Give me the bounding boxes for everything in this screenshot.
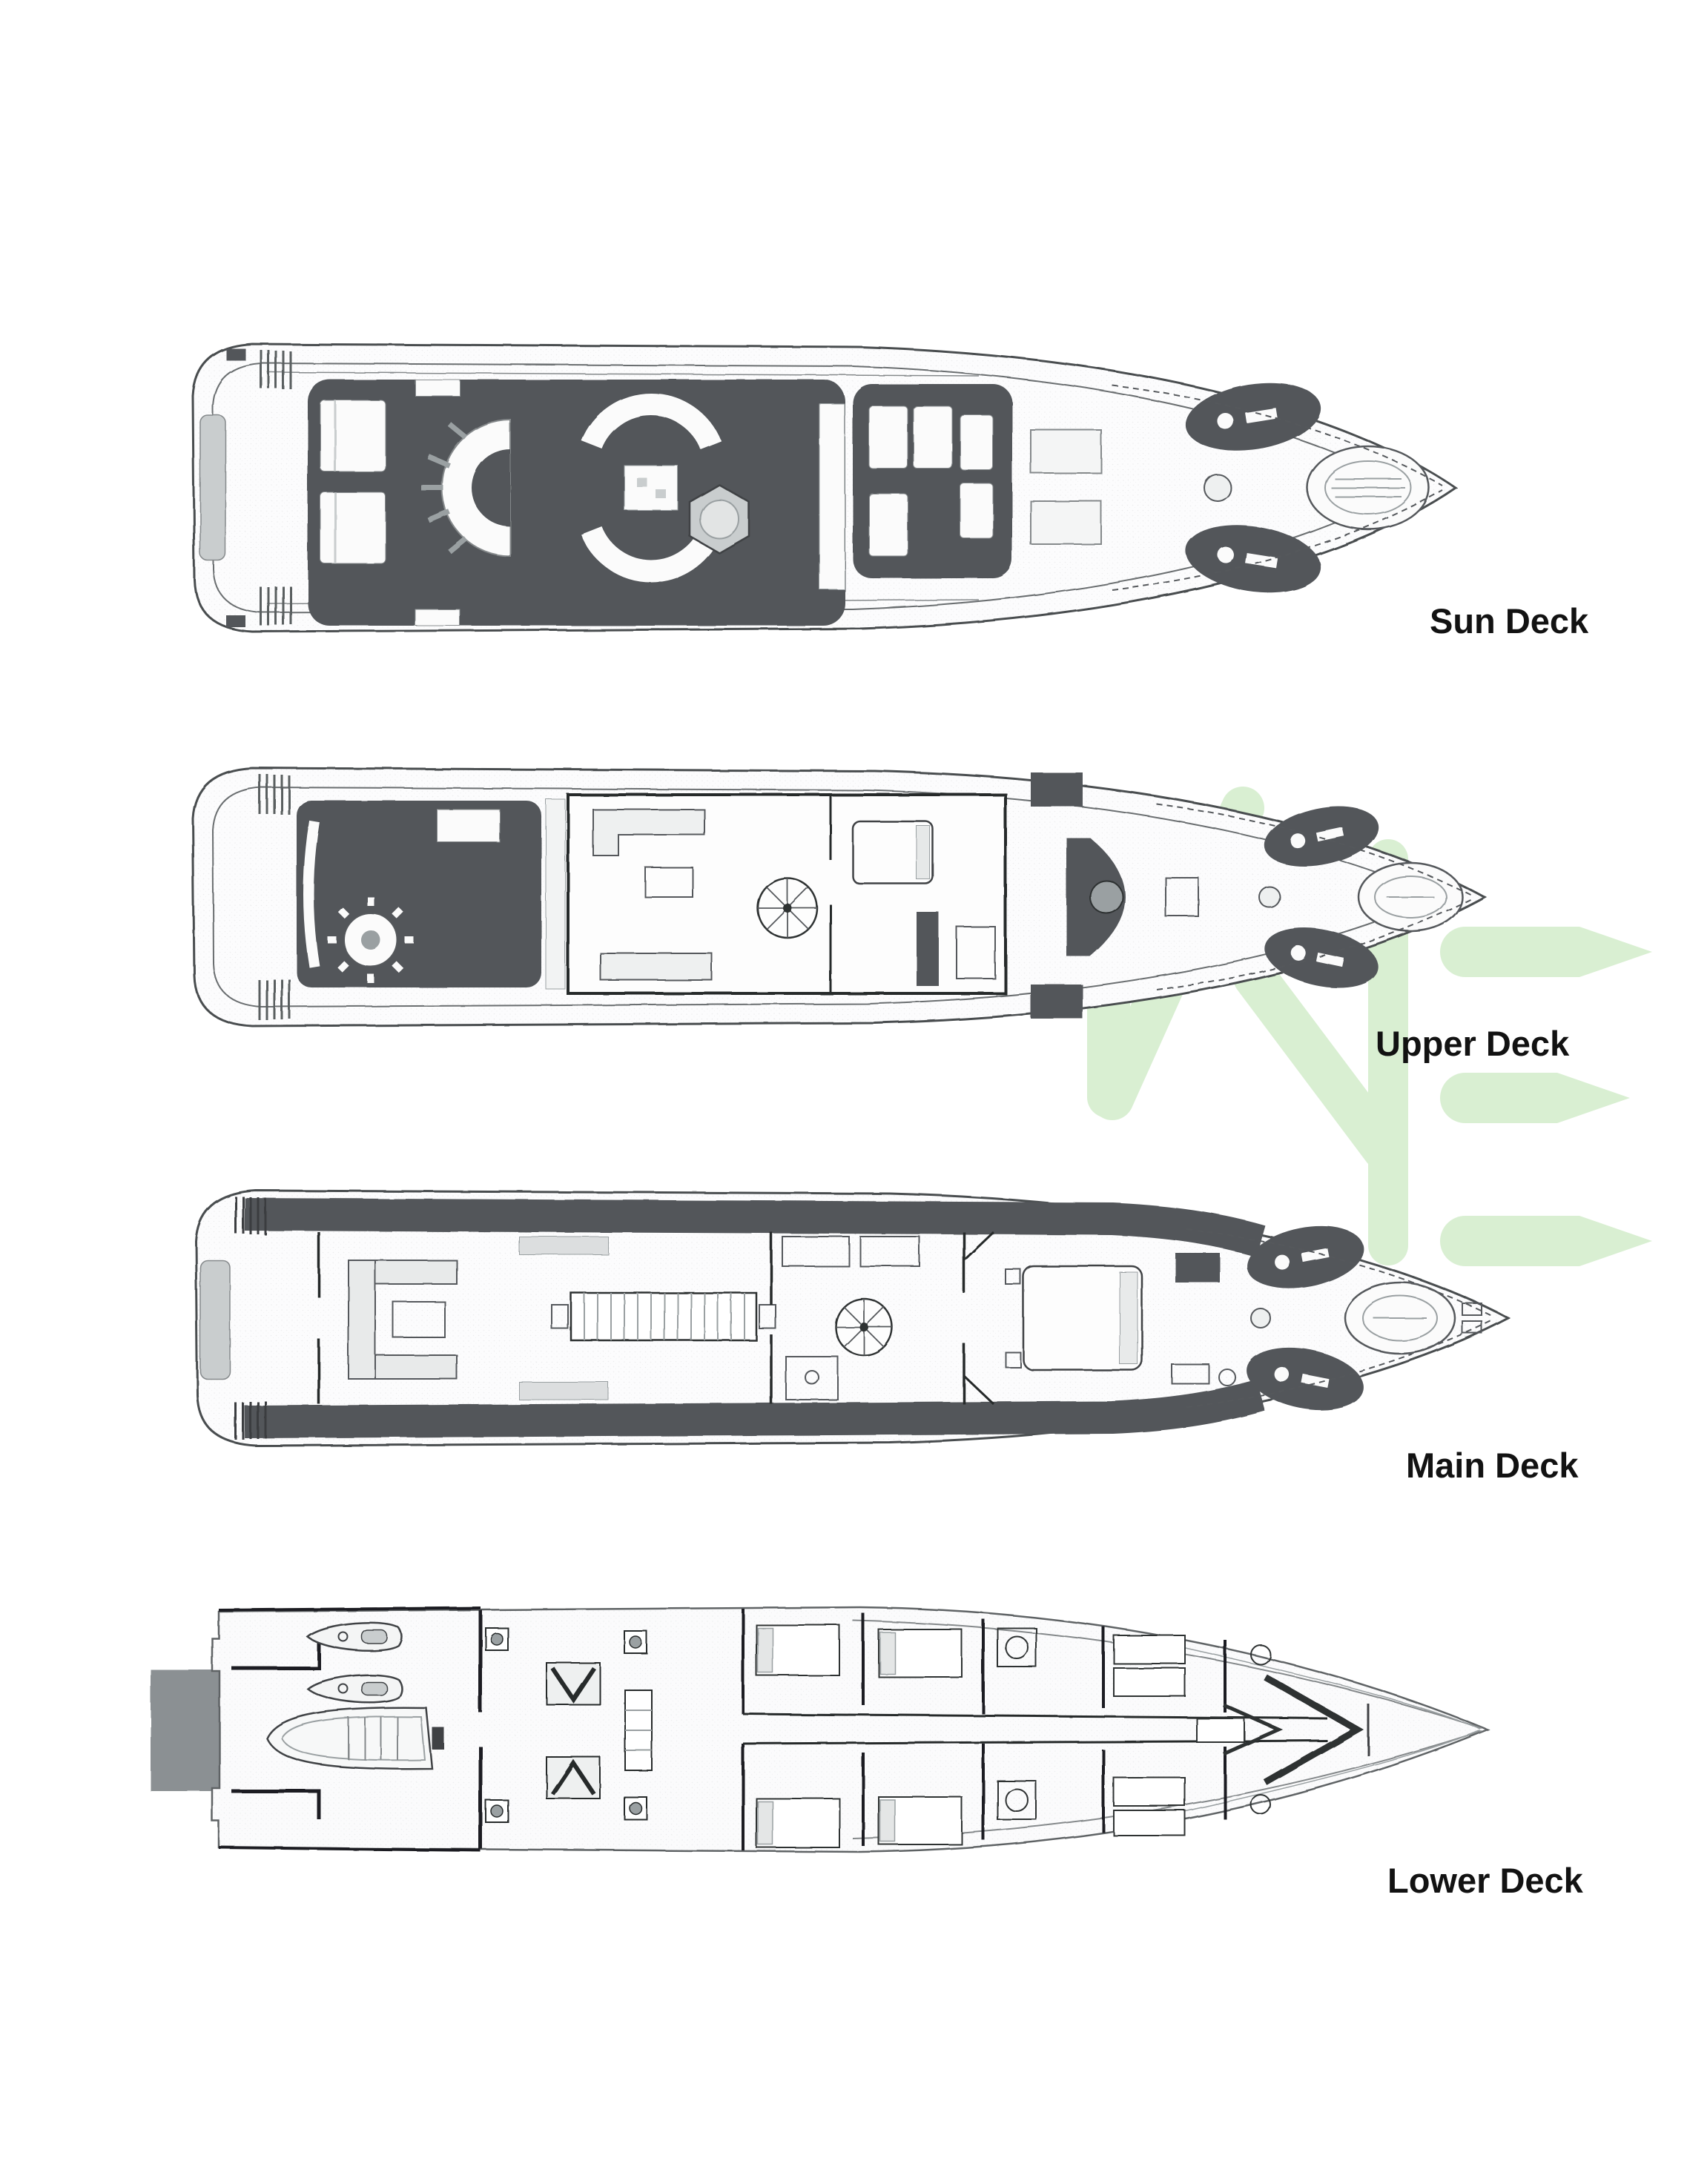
rescue-tender — [1358, 863, 1462, 931]
dining-table — [552, 1293, 776, 1340]
deck-label-lower-deck: Lower Deck — [1387, 1860, 1583, 1901]
sofa — [601, 953, 712, 980]
stern-boarding-pad — [200, 415, 225, 560]
deck-label-main-deck: Main Deck — [1406, 1445, 1578, 1486]
windlass — [1251, 1308, 1270, 1328]
master-bed — [1006, 1266, 1142, 1370]
main-deck-plan — [178, 1168, 1535, 1472]
yacht-deck-plans-page: Sun Deck Upper Deck Main Deck Lower Deck — [0, 0, 1687, 2184]
deck-label-sun-deck: Sun Deck — [1430, 600, 1588, 641]
bow-lounger — [1307, 446, 1429, 529]
sun-deck-plan — [178, 319, 1490, 652]
aft-deck-dark-floor — [297, 801, 541, 987]
spiral-staircase — [758, 878, 817, 938]
bed — [853, 821, 933, 884]
aft-bench — [308, 821, 314, 967]
lounger-block — [853, 384, 1012, 578]
deck-label-upper-deck: Upper Deck — [1376, 1023, 1569, 1064]
windlass — [1259, 887, 1280, 907]
windlass — [1204, 474, 1231, 501]
bow-seating — [1345, 1283, 1455, 1354]
swim-platform — [151, 1670, 225, 1791]
upper-deck-plan — [178, 745, 1505, 1049]
spiral-staircase — [836, 1299, 892, 1355]
lower-deck-plan — [137, 1583, 1509, 1879]
sun-deck-dark-floor — [308, 380, 845, 626]
